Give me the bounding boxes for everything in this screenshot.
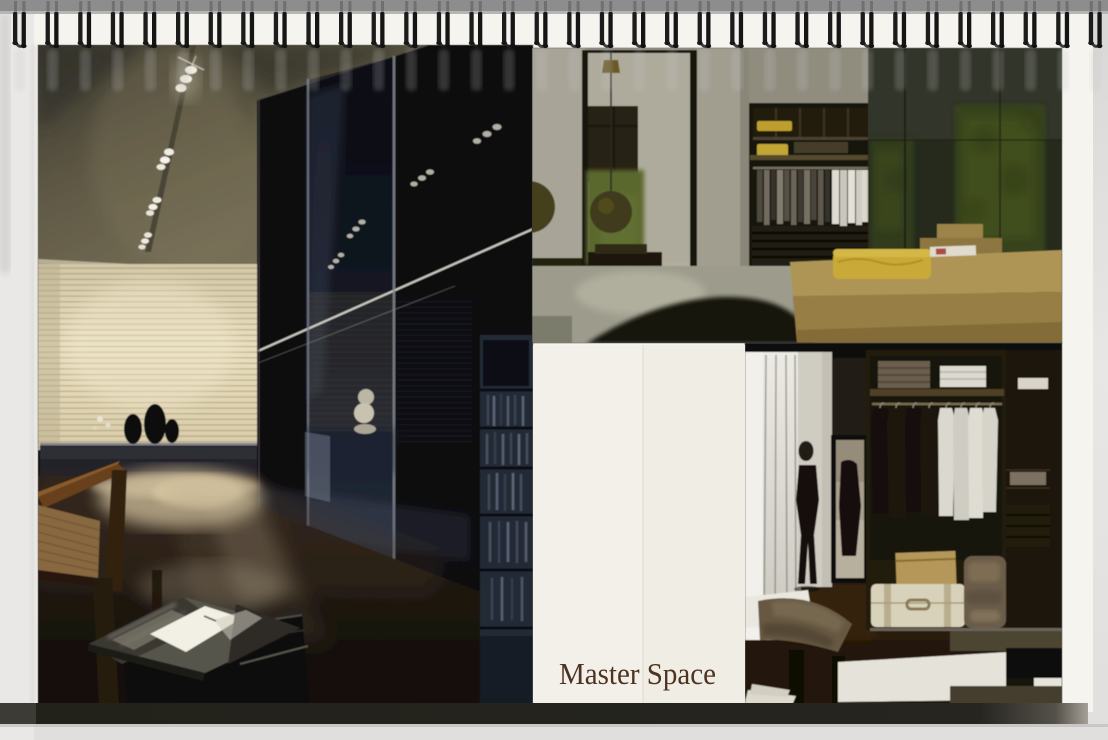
svg-text:Master Space: Master Space bbox=[559, 656, 716, 691]
